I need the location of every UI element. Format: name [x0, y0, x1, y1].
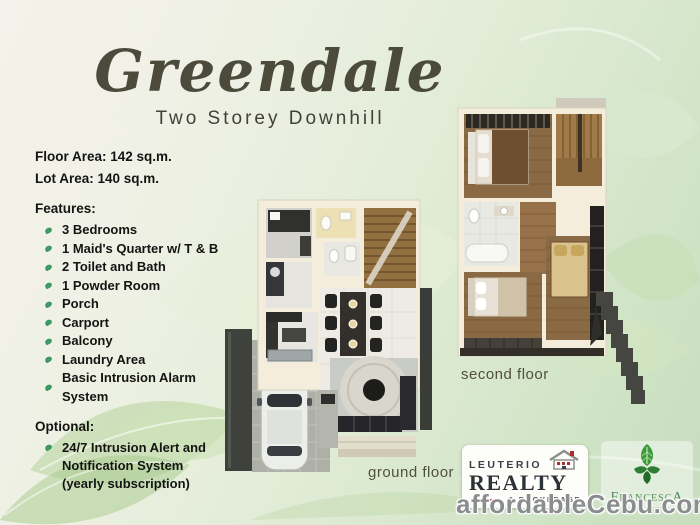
- list-item: Balcony: [35, 332, 245, 351]
- features-list: 3 Bedrooms 1 Maid's Quarter w/ T & B 2 T…: [35, 221, 245, 406]
- list-item: 1 Powder Room: [35, 277, 245, 296]
- optional-line: 24/7 Intrusion Alert and: [62, 439, 206, 457]
- leaf-emblem-icon: [624, 443, 670, 485]
- optional-item: 24/7 Intrusion Alert and Notification Sy…: [35, 439, 245, 493]
- feature-label: Balcony: [62, 332, 113, 351]
- list-item: Laundry Area: [35, 351, 245, 370]
- leaf-bullet-icon: [44, 263, 53, 271]
- leaf-bullet-icon: [44, 356, 53, 364]
- feature-label: 2 Toilet and Bath: [62, 258, 166, 277]
- leaf-bullet-icon: [44, 226, 53, 234]
- features-heading: Features:: [35, 199, 245, 219]
- feature-label: 3 Bedrooms: [62, 221, 137, 240]
- watermark-text: affordableCebu.com: [456, 489, 700, 520]
- title-block: Greendale Two Storey Downhill: [70, 36, 470, 130]
- floor-area-spec: Floor Area: 142 sq.m.: [35, 146, 245, 168]
- leaf-bullet-icon: [44, 282, 53, 290]
- leaf-bullet-icon: [44, 300, 53, 308]
- list-item: Porch: [35, 295, 245, 314]
- list-item: 2 Toilet and Bath: [35, 258, 245, 277]
- second-floor-label: second floor: [461, 366, 549, 383]
- optional-heading: Optional:: [35, 417, 245, 437]
- list-item: 1 Maid's Quarter w/ T & B: [35, 240, 245, 259]
- greendale-flyer: Greendale Two Storey Downhill Floor Area…: [0, 0, 700, 525]
- list-item: Carport: [35, 314, 245, 333]
- leaf-bullet-icon: [44, 319, 53, 327]
- feature-label: Basic Intrusion Alarm System: [62, 369, 245, 406]
- feature-label: Carport: [62, 314, 109, 333]
- list-item: Basic Intrusion Alarm System: [35, 369, 245, 406]
- ground-floor-plan: [222, 192, 440, 484]
- optional-line: Notification System: [62, 457, 206, 475]
- leaf-bullet-icon: [44, 384, 53, 392]
- feature-label: Laundry Area: [62, 351, 145, 370]
- optional-line: (yearly subscription): [62, 475, 206, 493]
- lot-area-spec: Lot Area: 140 sq.m.: [35, 168, 245, 190]
- feature-label: 1 Powder Room: [62, 277, 160, 296]
- list-item: 3 Bedrooms: [35, 221, 245, 240]
- page-subtitle: Two Storey Downhill: [70, 108, 470, 130]
- optional-lines: 24/7 Intrusion Alert and Notification Sy…: [62, 439, 206, 493]
- leaf-bullet-icon: [44, 337, 53, 345]
- ground-floor-label: ground floor: [368, 464, 454, 481]
- info-panel: Floor Area: 142 sq.m. Lot Area: 140 sq.m…: [35, 146, 245, 493]
- leaf-bullet-icon: [44, 444, 53, 452]
- house-icon: [547, 448, 581, 472]
- page-title: Greendale: [70, 36, 470, 106]
- feature-label: Porch: [62, 295, 99, 314]
- leaf-bullet-icon: [44, 245, 53, 253]
- feature-label: 1 Maid's Quarter w/ T & B: [62, 240, 218, 259]
